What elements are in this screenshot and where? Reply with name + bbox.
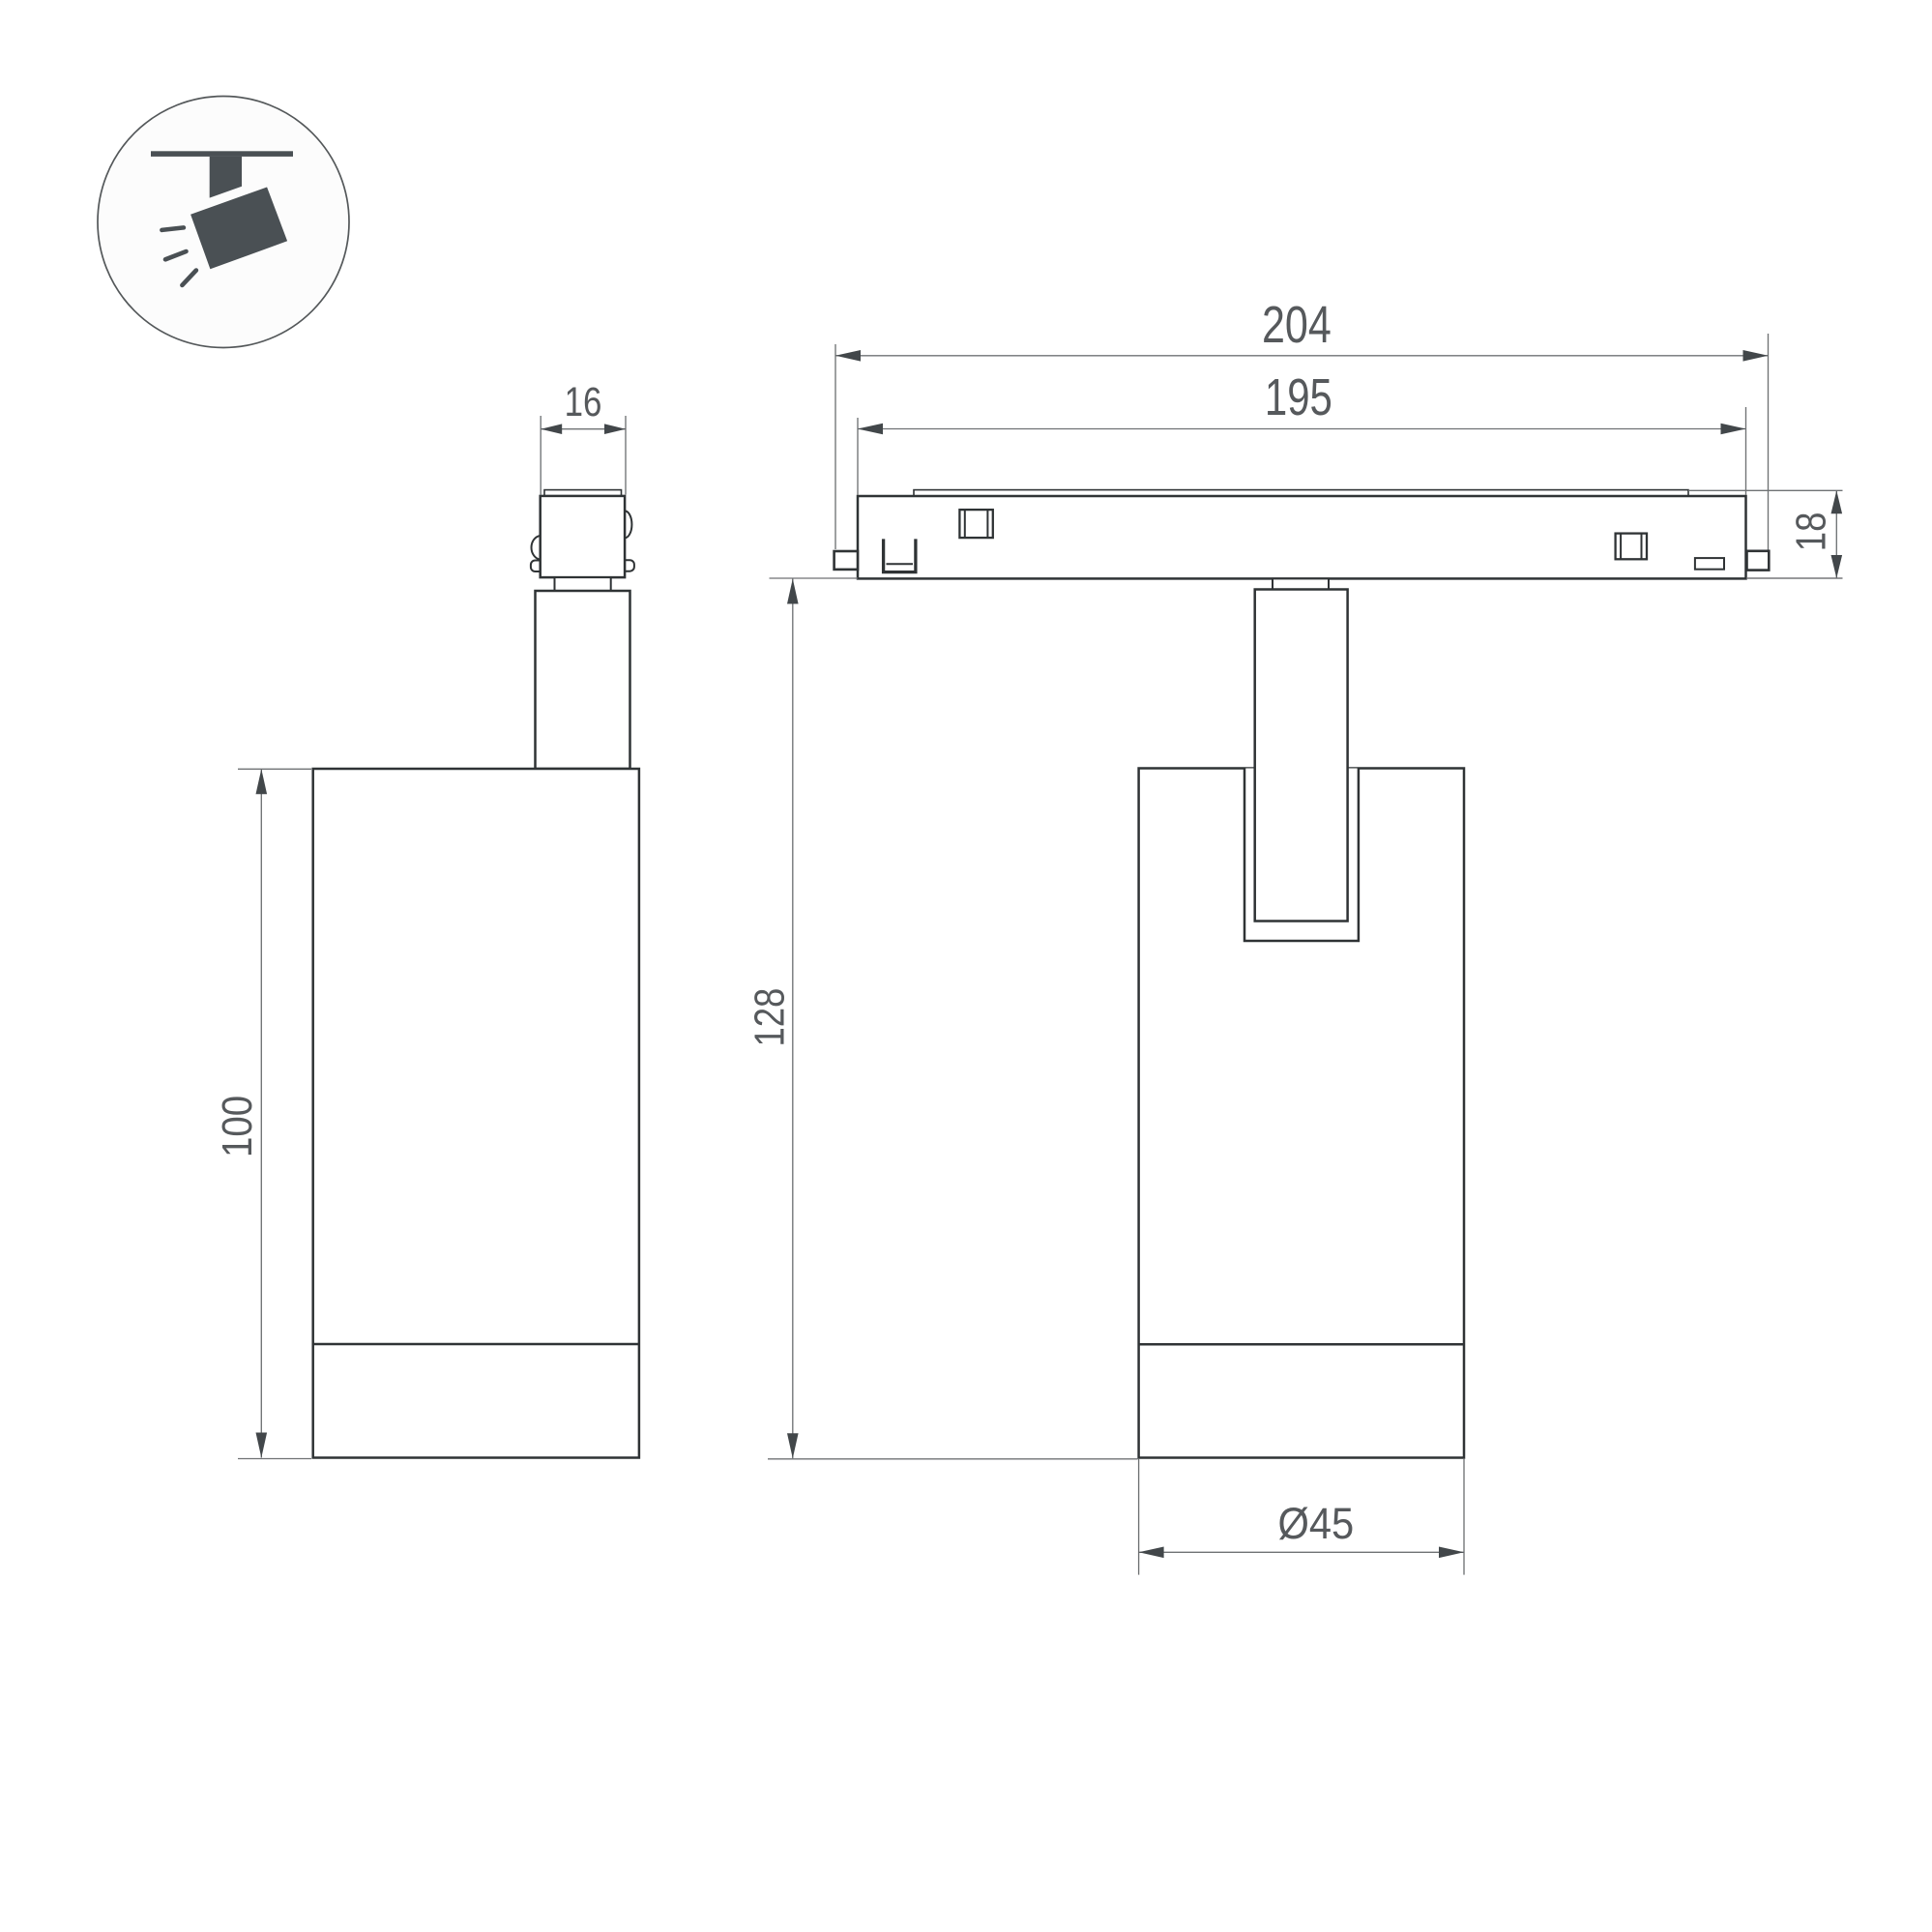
svg-text:Ø45: Ø45 [1277, 1499, 1354, 1548]
svg-text:204: 204 [1262, 296, 1332, 354]
svg-text:100: 100 [214, 1096, 261, 1157]
svg-text:16: 16 [565, 379, 602, 425]
svg-text:128: 128 [746, 988, 793, 1047]
svg-text:195: 195 [1265, 368, 1332, 426]
svg-text:18: 18 [1788, 512, 1835, 552]
